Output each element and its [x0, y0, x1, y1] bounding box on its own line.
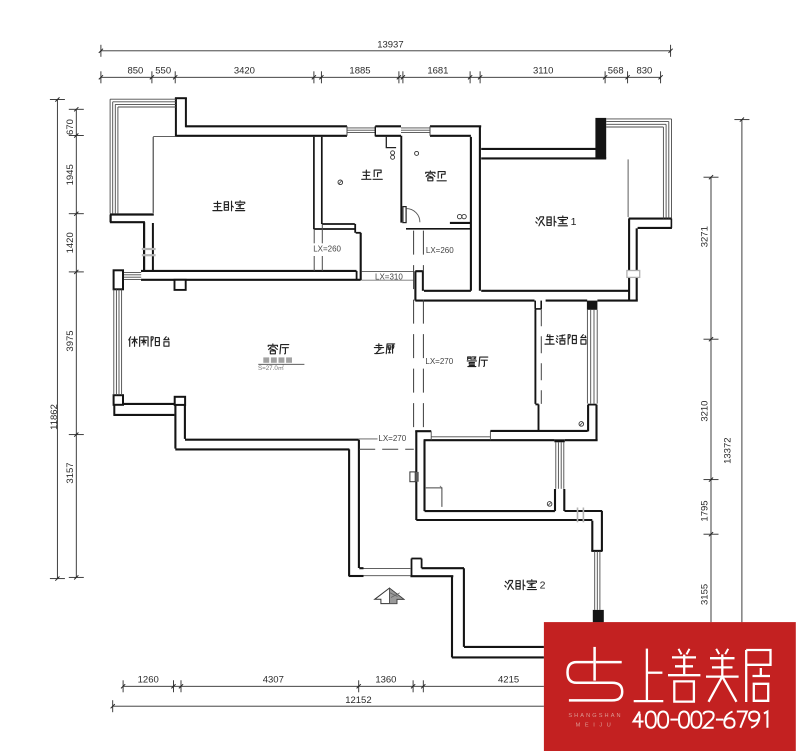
- svg-text:12152: 12152: [345, 695, 371, 706]
- svg-text:LX=310: LX=310: [375, 272, 403, 281]
- svg-text:3210: 3210: [699, 401, 710, 422]
- svg-text:1945: 1945: [65, 164, 76, 185]
- svg-text:830: 830: [636, 65, 652, 76]
- svg-text:3975: 3975: [65, 330, 76, 351]
- svg-text:550: 550: [155, 65, 171, 76]
- svg-text:2: 2: [540, 580, 546, 592]
- svg-text:13937: 13937: [377, 39, 403, 50]
- svg-text:MEIJU: MEIJU: [576, 723, 616, 729]
- svg-text:1420: 1420: [65, 232, 76, 253]
- svg-text:11862: 11862: [49, 404, 60, 430]
- svg-text:568: 568: [608, 65, 624, 76]
- svg-text:S=27.0㎡: S=27.0㎡: [258, 364, 285, 372]
- svg-text:3110: 3110: [533, 65, 553, 76]
- svg-text:4215: 4215: [498, 675, 519, 686]
- svg-text:670: 670: [65, 119, 76, 135]
- svg-text:1: 1: [571, 216, 577, 228]
- svg-text:1885: 1885: [349, 65, 370, 76]
- svg-text:3271: 3271: [699, 226, 710, 247]
- svg-text:SHANGSHAN: SHANGSHAN: [568, 713, 622, 719]
- svg-text:4307: 4307: [263, 675, 284, 686]
- svg-text:3157: 3157: [65, 462, 76, 483]
- svg-text:1260: 1260: [138, 675, 159, 686]
- svg-text:1681: 1681: [427, 65, 448, 76]
- svg-text:LX=260: LX=260: [426, 246, 454, 255]
- svg-text:1795: 1795: [699, 500, 710, 521]
- svg-text:13372: 13372: [722, 437, 733, 463]
- svg-text:1360: 1360: [375, 675, 396, 686]
- svg-text:LX=270: LX=270: [425, 357, 453, 366]
- svg-text:3420: 3420: [234, 65, 255, 76]
- svg-text:LX=260: LX=260: [313, 244, 341, 253]
- svg-text:LX=270: LX=270: [378, 434, 406, 443]
- svg-text:850: 850: [127, 65, 143, 76]
- svg-text:3155: 3155: [699, 584, 710, 605]
